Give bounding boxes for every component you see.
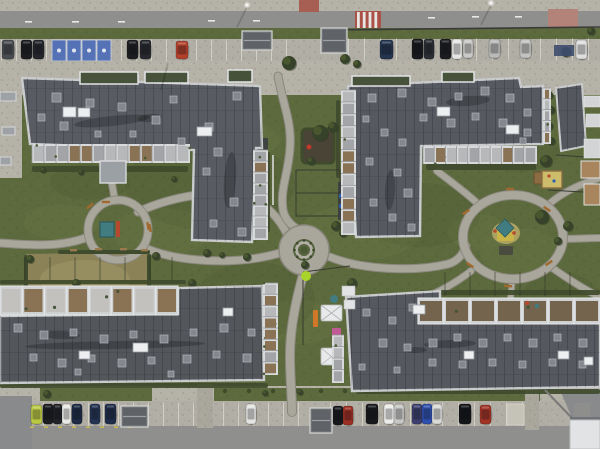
balcony-plant: [144, 157, 147, 160]
skylight: [558, 351, 569, 359]
lane-dash: [428, 17, 435, 19]
roof-vent: [481, 87, 489, 95]
terrace-deck: [69, 289, 87, 312]
yellow-dash: [58, 427, 62, 428]
wheelchair-mark: [57, 49, 61, 53]
balcony-cell: [343, 139, 354, 149]
grass-verge-texture: [0, 28, 600, 40]
tree-highlight: [332, 222, 338, 228]
roof-vent: [524, 129, 531, 136]
balcony-cell: [481, 148, 491, 162]
roof-vent: [152, 116, 160, 124]
lane-dash: [208, 20, 215, 22]
balcony-plant: [258, 156, 261, 159]
car-hood-highlight: [55, 406, 60, 408]
roof-vent: [404, 344, 411, 351]
balcony-plant: [335, 344, 338, 347]
roof-vent: [40, 331, 48, 339]
car-hood-highlight: [107, 406, 114, 408]
balcony-cell: [265, 296, 276, 306]
street-light: [245, 3, 248, 6]
parking-line: [16, 40, 17, 62]
balcony-cell: [142, 146, 152, 161]
tree-highlight: [27, 256, 31, 260]
parking-line: [238, 403, 239, 427]
hedge-row: [0, 280, 186, 284]
roof-vent: [14, 324, 22, 332]
tree-highlight: [308, 158, 312, 162]
car-glass: [92, 409, 99, 420]
balcony-cell: [425, 148, 435, 162]
planter: [70, 249, 77, 251]
skylight: [197, 127, 212, 136]
roundabout-shrub: [296, 255, 299, 258]
parking-line: [103, 403, 104, 427]
parking-line: [474, 403, 475, 427]
terrace-plant: [527, 305, 530, 308]
roof-terrace: [145, 72, 188, 83]
car-hood-highlight: [442, 41, 449, 43]
terrace-plant: [455, 310, 458, 313]
tarp-pad: [554, 45, 574, 56]
car-glass: [4, 45, 13, 55]
terrace-plant: [105, 295, 108, 298]
roof-vent: [455, 93, 462, 100]
roof-vent: [366, 158, 373, 165]
car-glass: [35, 45, 43, 55]
parking-line: [178, 403, 179, 427]
car-hood-highlight: [491, 41, 498, 43]
car-glass: [45, 409, 52, 420]
car-glass: [382, 45, 392, 55]
car-hood-highlight: [368, 406, 376, 408]
roundabout-shrub: [303, 239, 306, 242]
parking-line: [540, 39, 541, 61]
tree-highlight: [78, 169, 81, 172]
roof-vent: [506, 94, 514, 102]
parking-line: [118, 403, 119, 427]
balcony-cell: [265, 330, 276, 340]
balcony-cell: [265, 364, 276, 374]
roof-vent: [214, 148, 222, 156]
balcony-cell: [545, 111, 549, 120]
penthouse-structure: [344, 300, 355, 309]
roof-terrace: [352, 76, 410, 86]
roof-vent: [363, 116, 369, 122]
balcony-cell: [130, 146, 140, 161]
skylight: [133, 343, 148, 352]
hedge-shrub: [247, 389, 251, 393]
car-glass: [424, 409, 431, 420]
roundabout-shrub: [309, 242, 312, 245]
terrace-deck: [550, 301, 572, 321]
hedge-shrub: [271, 389, 275, 393]
balcony-cell: [334, 348, 342, 358]
balcony-cell: [334, 360, 342, 370]
parking-line: [163, 403, 164, 427]
bike-shelter: [0, 92, 16, 101]
terrace-deck: [91, 289, 109, 312]
car-hood-highlight: [454, 41, 460, 43]
building-right-edge-terrace: [584, 184, 600, 205]
parking-line: [166, 40, 167, 62]
roof-vent: [454, 334, 461, 341]
car-hood-highlight: [23, 42, 30, 44]
roof-vent: [520, 138, 526, 144]
roof-vent: [75, 369, 81, 375]
balcony-plant: [264, 203, 267, 206]
lane-dash: [118, 21, 125, 23]
roof-terrace: [442, 72, 474, 82]
tree-highlight: [564, 222, 570, 228]
parking-line: [476, 39, 477, 61]
roof-vent: [168, 371, 174, 377]
parking-line: [46, 40, 47, 62]
terrace-plant: [116, 290, 119, 293]
roundabout-shrub: [293, 249, 296, 252]
bench: [102, 201, 110, 203]
car-hood-highlight: [461, 406, 469, 408]
roof-vent: [447, 119, 455, 127]
balcony-cell: [255, 218, 266, 227]
balcony-cell: [265, 307, 276, 317]
car-glass: [64, 409, 70, 420]
balcony-cell: [58, 146, 68, 161]
roof-vent: [504, 334, 511, 341]
roof-vent: [389, 317, 396, 324]
building-right-edge-facade: [586, 114, 600, 127]
skylight: [63, 107, 76, 117]
car-hood-highlight: [74, 406, 80, 408]
balcony-cell: [46, 146, 56, 161]
tree-highlight: [348, 279, 354, 285]
roof-vent: [30, 354, 37, 361]
skylight: [78, 108, 90, 117]
terrace-plant: [24, 307, 27, 310]
car-hood-highlight: [35, 42, 42, 44]
car-hood-highlight: [424, 406, 430, 408]
balcony-cell: [178, 146, 188, 161]
balcony-cell: [343, 116, 354, 126]
car-glass: [465, 44, 472, 54]
roof-vent: [60, 122, 68, 130]
balcony-cell: [82, 146, 92, 161]
car-glass: [426, 44, 433, 55]
swing-frame: [499, 246, 513, 255]
parking-line: [268, 403, 269, 427]
roundabout-center-shrub: [301, 247, 308, 254]
roof-vent: [86, 99, 94, 107]
yellow-dash: [86, 427, 90, 428]
roof-vent: [203, 168, 210, 175]
terrace-item: [525, 301, 529, 305]
terrace-deck: [2, 289, 20, 312]
roof-vent: [429, 359, 436, 366]
roundabout-shrub: [296, 242, 299, 245]
lane-dash: [72, 21, 79, 23]
yellow-dash: [30, 427, 34, 428]
roof-vent: [183, 355, 191, 363]
tree-highlight: [283, 57, 291, 65]
roof-vent: [243, 354, 251, 362]
car-hood-highlight: [45, 406, 51, 408]
curb: [272, 155, 274, 205]
car-glass: [248, 409, 255, 420]
car-hood-highlight: [129, 42, 136, 44]
garden-toy: [301, 271, 311, 281]
garden-toy: [332, 328, 341, 335]
roof-vent: [230, 198, 238, 206]
tree-highlight: [44, 391, 48, 395]
parking-line: [362, 403, 363, 427]
hedge-shrub: [223, 389, 227, 393]
terrace-deck: [498, 301, 520, 321]
balcony-cell: [265, 352, 276, 362]
balcony-cell: [265, 319, 276, 329]
parking-line: [410, 403, 411, 427]
lane-dash: [472, 16, 479, 18]
scene-canvas: [0, 0, 600, 449]
yellow-dash: [114, 427, 118, 428]
car-hood-highlight: [465, 41, 471, 43]
car-glass: [33, 410, 41, 420]
roof-vent: [58, 359, 66, 367]
roof-terrace: [228, 70, 252, 82]
roof-vent: [554, 334, 561, 341]
car-glass: [396, 409, 403, 420]
balcony-cell: [255, 229, 266, 238]
balcony-cell: [545, 133, 549, 142]
roof-vent: [190, 329, 197, 336]
roof-vent: [210, 220, 217, 227]
roof-vent: [363, 309, 370, 316]
roof-vent: [38, 114, 45, 121]
driveway-asphalt: [0, 396, 32, 449]
balcony-cell: [255, 196, 266, 205]
parking-line: [226, 40, 227, 62]
roof-vent: [524, 109, 531, 116]
balcony-cell: [343, 92, 354, 102]
roof-vent: [368, 94, 376, 102]
parking-line: [508, 39, 509, 61]
balcony-plant: [188, 147, 191, 150]
street-light: [489, 1, 492, 4]
balcony-cell: [343, 199, 354, 209]
roof-vent: [238, 228, 246, 236]
terrace-plant: [53, 306, 56, 309]
yellow-dash: [100, 427, 104, 428]
entrance-canopy: [100, 161, 126, 183]
parking-line: [223, 403, 224, 427]
sandbox: [542, 171, 562, 188]
roof-vent: [579, 339, 587, 347]
balcony-cell: [458, 148, 468, 162]
roof-vent: [489, 359, 496, 366]
crosswalk-stripe: [363, 12, 366, 30]
car-glass: [482, 410, 490, 420]
car-hood-highlight: [414, 41, 421, 43]
balcony-cell: [255, 207, 266, 216]
balcony-cell: [255, 163, 266, 172]
balcony-cell: [514, 148, 524, 162]
balcony-cell: [343, 211, 354, 221]
play-detail: [512, 231, 516, 235]
play-mat: [100, 222, 114, 237]
roof-vent: [220, 324, 228, 332]
car-hood-highlight: [4, 42, 12, 44]
tree-highlight: [40, 167, 43, 170]
skylight: [79, 351, 90, 359]
roof-vent: [420, 114, 427, 121]
car-glass: [578, 45, 586, 55]
crosswalk-stripe: [357, 12, 360, 30]
tree-highlight: [541, 156, 548, 163]
parking-line: [193, 403, 194, 427]
car-glass: [55, 409, 61, 420]
balcony-cell: [343, 151, 354, 161]
car-hood-highlight: [92, 406, 98, 408]
red-paving: [299, 0, 319, 12]
balcony-plant: [263, 372, 266, 375]
roof-vent: [52, 93, 61, 102]
hedge-shrub: [319, 389, 323, 393]
roof-vent: [359, 364, 365, 370]
car-glass: [414, 44, 422, 55]
roof-vent: [529, 339, 537, 347]
parking-line: [88, 403, 89, 427]
car-glass: [74, 409, 81, 420]
car-hood-highlight: [522, 41, 529, 43]
yellow-dash: [72, 427, 76, 428]
balcony-cell: [118, 146, 128, 161]
roundabout-shrub: [303, 258, 306, 261]
red-object: [307, 145, 312, 150]
terrace-deck: [158, 289, 176, 312]
lane-dash: [25, 21, 32, 23]
roof-vent: [248, 329, 255, 336]
car-hood-highlight: [382, 42, 391, 44]
roof-vent: [379, 339, 387, 347]
garden-toy: [330, 295, 338, 303]
tree-highlight: [302, 262, 306, 266]
planter: [120, 248, 127, 250]
tree-highlight: [189, 280, 193, 284]
balcony-cell: [545, 101, 549, 110]
crosswalk-stripe: [369, 12, 372, 30]
lane-dash: [515, 16, 522, 18]
balcony-cell: [470, 148, 480, 162]
roof-vent: [472, 113, 479, 120]
bottom-grass-texture: [40, 388, 152, 402]
roof-vent: [394, 169, 401, 176]
toy: [552, 179, 555, 182]
tree-highlight: [555, 238, 559, 242]
car-glass: [142, 45, 150, 55]
bench: [506, 188, 514, 190]
tree-highlight: [341, 55, 347, 61]
balcony-cell: [526, 148, 536, 162]
roof-vent: [118, 359, 126, 367]
skylight: [464, 351, 474, 359]
toy: [547, 174, 550, 177]
roof-vent: [519, 361, 526, 368]
tree-highlight: [153, 253, 157, 257]
planter: [141, 249, 148, 251]
concrete-pad: [507, 404, 524, 425]
balcony-cell: [343, 128, 354, 138]
balcony-cell: [343, 175, 354, 185]
balcony-cell: [255, 174, 266, 183]
car-glass: [386, 409, 393, 420]
roof-vent: [70, 329, 77, 336]
balcony-plant: [263, 345, 266, 348]
tree-highlight: [536, 211, 544, 219]
aerial-photo: [0, 0, 600, 449]
balcony-cell: [503, 148, 513, 162]
roof-vent: [233, 92, 241, 100]
terrace-deck: [47, 289, 65, 312]
wheelchair-mark: [102, 49, 106, 53]
car-hood-highlight: [178, 43, 186, 45]
top-road: [0, 11, 600, 29]
parking-line: [298, 403, 299, 427]
balcony-cell: [34, 146, 44, 161]
tree-highlight: [73, 280, 77, 284]
parking-line: [283, 403, 284, 427]
balcony-plant: [546, 123, 549, 126]
roof-vent: [404, 189, 412, 197]
terrace-deck: [472, 301, 494, 321]
tree-highlight: [262, 390, 265, 393]
balcony-cell: [545, 90, 549, 99]
balcony-cell: [265, 341, 276, 351]
roof-vent: [428, 98, 436, 106]
lane-dash: [253, 20, 260, 22]
roof-vent: [213, 351, 220, 358]
balcony-cell: [166, 146, 176, 161]
car-hood-highlight: [414, 406, 420, 408]
tree-highlight: [244, 254, 248, 258]
car-glass: [368, 409, 377, 420]
car-glass: [454, 44, 461, 55]
balcony-cell: [343, 104, 354, 114]
skylight: [413, 305, 425, 314]
parking-line: [396, 39, 397, 61]
car-glass: [414, 409, 421, 420]
hedge-row: [336, 100, 340, 178]
balcony-cell: [265, 285, 276, 295]
balcony-cell: [447, 148, 457, 162]
car-glass: [491, 44, 499, 54]
car-glass: [23, 45, 31, 55]
tree-highlight: [354, 61, 358, 65]
balcony-plant: [263, 282, 266, 285]
car-hood-highlight: [248, 406, 254, 408]
tree-highlight: [588, 28, 592, 32]
balcony-cell: [343, 223, 354, 233]
car-glass: [178, 46, 187, 55]
bike-shelter: [0, 157, 11, 165]
roof-vent: [408, 224, 415, 231]
penthouse-structure: [342, 286, 355, 296]
hedge-row: [0, 383, 268, 388]
roof-vent: [148, 357, 155, 364]
balcony-plant: [343, 138, 346, 141]
tree-highlight: [297, 389, 300, 392]
terrace-item: [535, 304, 539, 308]
parking-line: [211, 40, 212, 62]
hedge-row: [420, 290, 600, 295]
